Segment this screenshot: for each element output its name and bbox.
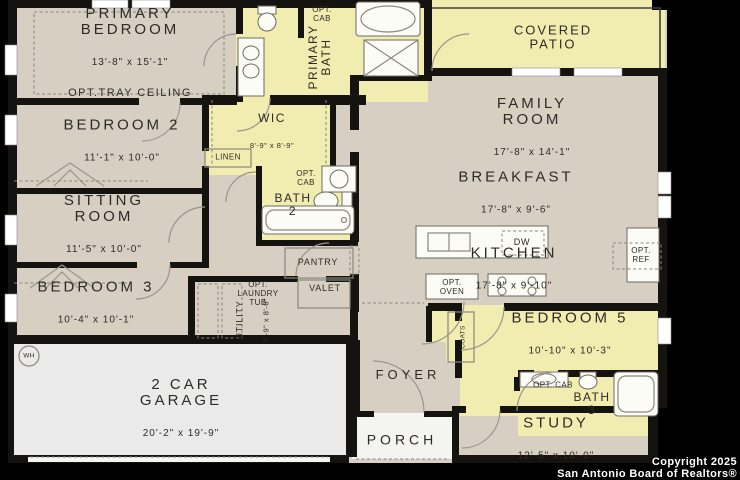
- room-name: STUDY: [518, 415, 595, 432]
- room-name: UTILITY: [235, 298, 245, 342]
- label-pantry: PANTRY: [298, 258, 338, 268]
- floor-plan: PRIMARY BEDROOM 13'-8" x 15'-1" OPT.TRAY…: [0, 0, 740, 480]
- room-dims: 17'-8" x 9'-6": [458, 204, 573, 215]
- label-opt-cab-primary: OPT. CAB: [312, 6, 331, 24]
- room-name: 2 CAR GARAGE: [140, 377, 222, 410]
- room-name: BEDROOM 3: [37, 279, 154, 296]
- copyright-line1: Copyright 2025: [557, 457, 737, 469]
- room-name: WIC: [250, 111, 294, 124]
- room-label-garage: 2 CAR GARAGE 20'-2" x 19'-9": [140, 359, 222, 457]
- room-dims: 5'-9" x 8'-6": [263, 298, 271, 342]
- label-dishwasher: DW: [514, 238, 531, 248]
- label-water-heater: WH: [23, 352, 34, 359]
- room-name: SITTING ROOM: [64, 193, 144, 226]
- room-dims: 8'-9" x 8'-9": [250, 142, 294, 150]
- label-opt-oven: OPT. OVEN: [440, 279, 464, 297]
- room-name: PRIMARY BEDROOM: [68, 5, 192, 38]
- room-dims: 10'-10" x 10'-3": [511, 345, 628, 356]
- room-label-bedroom-5: BEDROOM 5 10'-10" x 10'-3": [511, 292, 628, 373]
- label-opt-cab-bath2: OPT. CAB: [296, 170, 315, 188]
- room-label-bedroom-3: BEDROOM 3 10'-4" x 10'-1": [37, 261, 154, 342]
- copyright-notice: Copyright 2025 San Antonio Board of Real…: [557, 457, 737, 480]
- room-dims: 13'-8" x 15'-1": [68, 57, 192, 68]
- room-dims: 17'-8" x 9'-10": [471, 280, 558, 291]
- room-dims: 11'-5" x 10'-0": [64, 244, 144, 255]
- room-dims: 20'-2" x 19'-9": [140, 428, 222, 439]
- room-label-sitting-room: SITTING ROOM 11'-5" x 10'-0": [64, 175, 144, 273]
- room-label-utility: UTILITY 5'-9" x 8'-6": [218, 298, 289, 342]
- garage-door: [28, 457, 330, 462]
- copyright-line2: San Antonio Board of Realtors®: [557, 469, 737, 480]
- room-dims: 11'-1" x 10'-0": [63, 152, 180, 163]
- room-label-breakfast: BREAKFAST 17'-8" x 9'-6": [458, 151, 573, 232]
- room-name: BEDROOM 2: [63, 117, 180, 134]
- room-name: BREAKFAST: [458, 169, 573, 186]
- room-label-primary-bath: PRIMARY BATH: [307, 25, 333, 90]
- label-coats: COATS: [459, 325, 466, 348]
- label-valet: VALET: [309, 284, 341, 294]
- room-label-porch: PORCH: [367, 432, 438, 447]
- room-label-bedroom-2: BEDROOM 2 11'-1" x 10'-0": [63, 99, 180, 180]
- label-opt-cab-bath3: OPT. CAB: [533, 382, 573, 391]
- room-name: FAMILY ROOM: [494, 96, 571, 129]
- room-note: OPT.TRAY CEILING: [68, 87, 192, 99]
- room-label-foyer: FOYER: [376, 368, 441, 382]
- label-linen: LINEN: [215, 154, 241, 163]
- room-dims: 10'-4" x 10'-1": [37, 314, 154, 325]
- room-label-covered-patio: COVERED PATIO: [514, 24, 592, 53]
- room-name: BEDROOM 5: [511, 310, 628, 327]
- room-label-bath-2: BATH 2: [274, 192, 311, 218]
- room-label-wic: WIC 8'-9" x 8'-9": [250, 94, 294, 168]
- label-opt-ref: OPT. REF: [631, 247, 650, 265]
